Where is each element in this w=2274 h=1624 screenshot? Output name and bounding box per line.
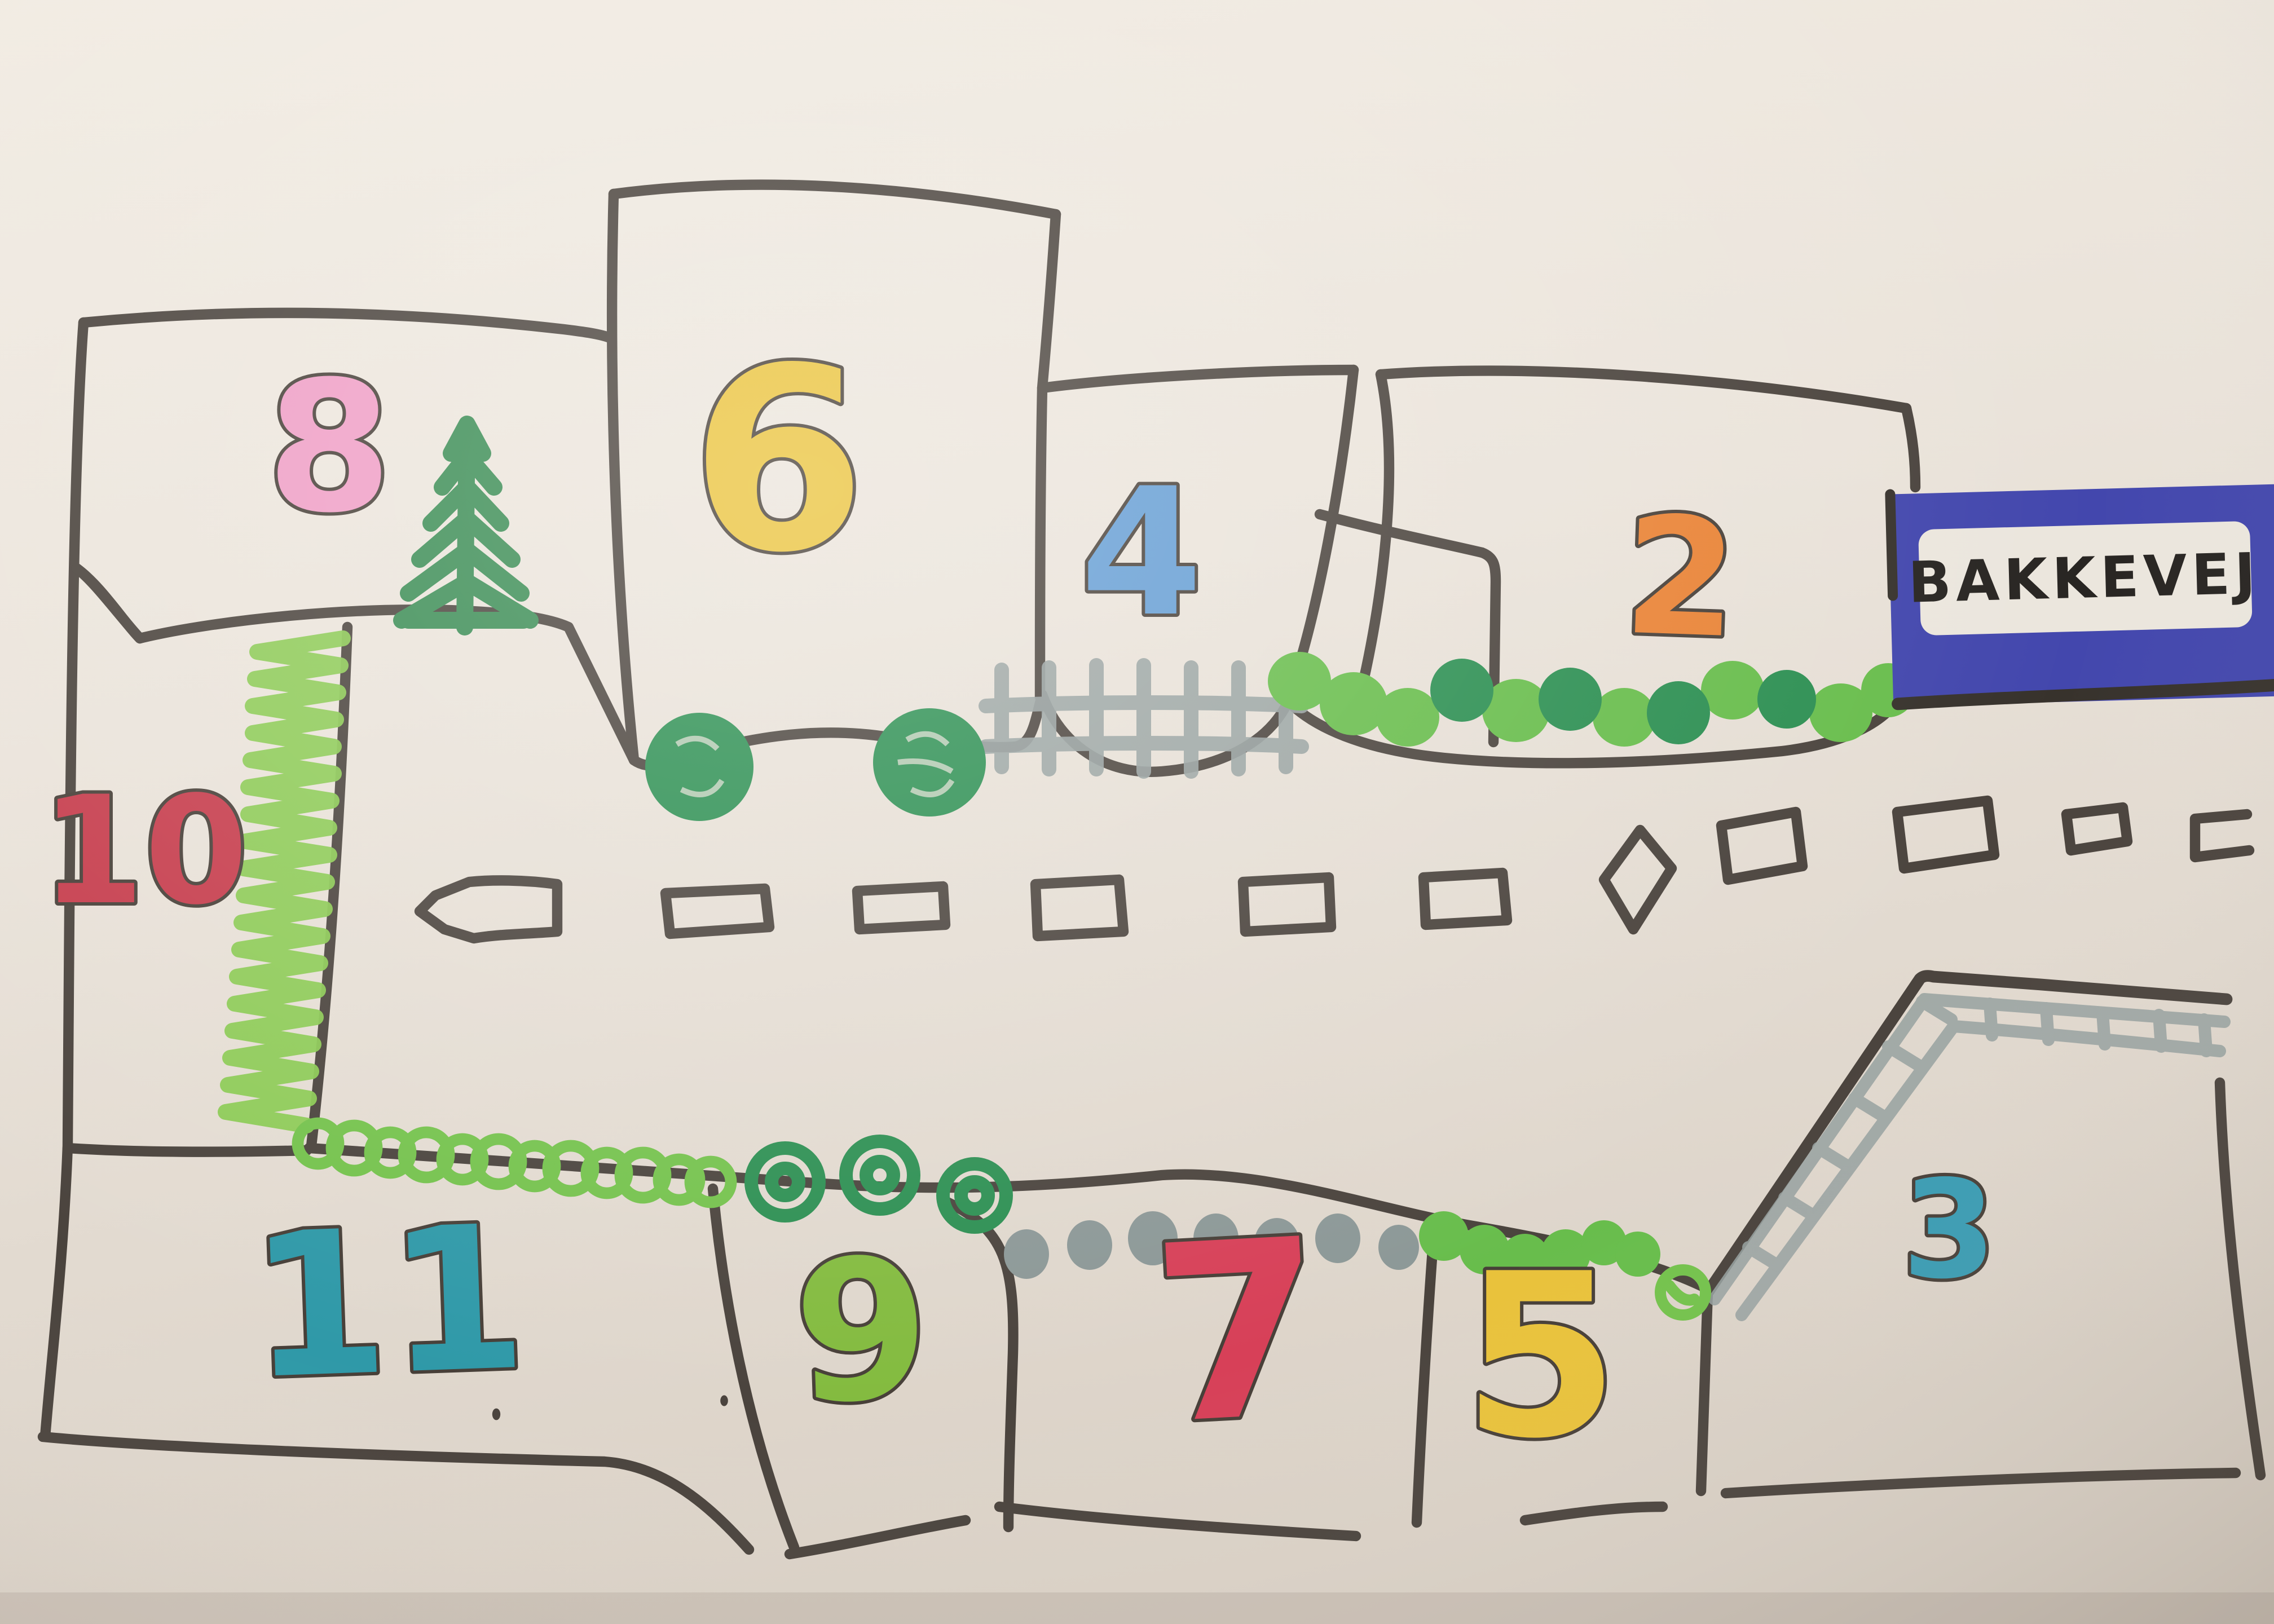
photo-vignette: [0, 0, 2274, 1624]
map-canvas: BAKKEVEJ 8 6 4 2 10 11 9 7 5 3: [0, 0, 2274, 1624]
photo-bottom-shadow: [0, 1592, 2274, 1624]
